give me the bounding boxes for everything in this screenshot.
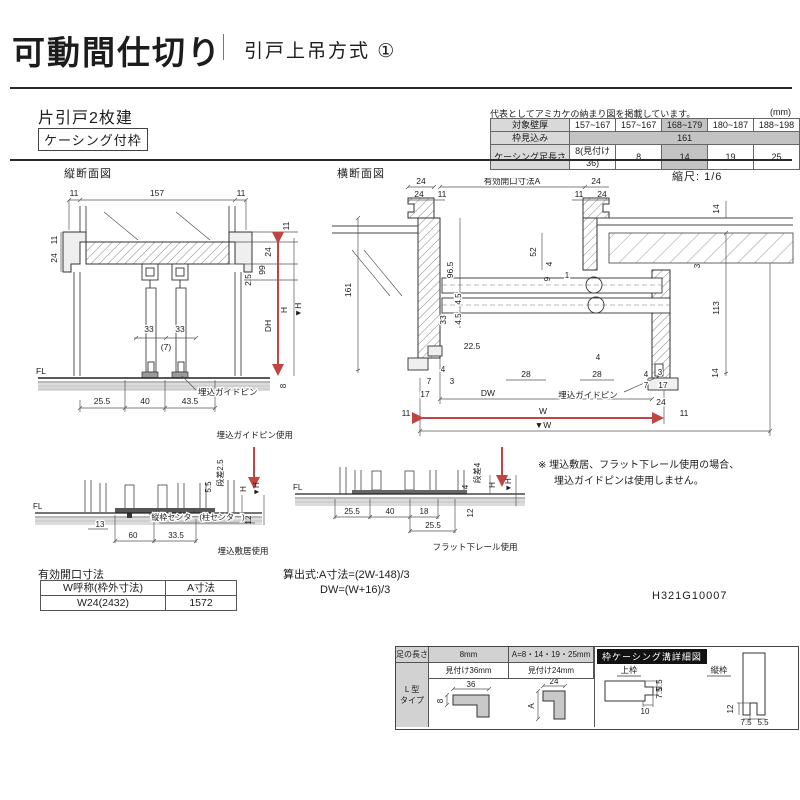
- dim-label: ▼H: [252, 482, 261, 496]
- dim-label: 18: [420, 507, 429, 516]
- dim-label: 24: [263, 247, 273, 257]
- spec-cell: 19: [708, 145, 754, 170]
- leg-row-label: L 型 タイプ: [396, 663, 429, 727]
- dim-label: 12: [466, 508, 475, 517]
- left-casing-foot: [408, 358, 428, 370]
- dimension-lines: [61, 198, 298, 412]
- spec-cell: 8(見付け36): [570, 145, 616, 170]
- dim-label: 4.5: [454, 293, 463, 305]
- lintel-section: [86, 242, 229, 264]
- dim-label: 43.5: [182, 396, 199, 406]
- dim-label: 17: [420, 389, 430, 399]
- dim-label: 157: [150, 188, 164, 198]
- dim-label: 2.5: [243, 274, 253, 286]
- dim-label: 113: [711, 301, 721, 315]
- dim-label: 36: [467, 680, 476, 689]
- groove-detail-drawing: 上枠 縦枠 5.5 7.5 10: [595, 647, 798, 726]
- dim-label: 28: [592, 369, 602, 379]
- casing-leg-table: 足の長さ 8mm A=8・14・19・25mm L 型 タイプ 見付け36mm …: [395, 646, 799, 730]
- door-plan: [442, 277, 670, 376]
- vertical-section-title: 縦断面図: [64, 165, 112, 181]
- dim-label: 4: [644, 370, 649, 379]
- dim-label: H: [279, 307, 289, 313]
- dim-label: 12: [244, 515, 253, 524]
- dim-label: 33: [175, 324, 185, 334]
- product-frame-label: ケーシング付枠: [38, 128, 148, 151]
- dim-label: 4.5: [454, 313, 463, 325]
- dim-label: 11: [237, 188, 246, 198]
- dim-label: 11: [438, 189, 447, 199]
- detail-title: 埋込ガイドピン使用: [216, 430, 293, 440]
- opening-col2-header: A寸法: [166, 581, 237, 596]
- dim-label: 24: [416, 178, 426, 186]
- opening-w-value: W24(2432): [41, 596, 166, 611]
- opening-table: W呼称(枠外寸法) A寸法 W24(2432) 1572: [40, 580, 237, 611]
- dim-label: 11: [575, 189, 584, 199]
- formula-line2: DW=(W+16)/3: [283, 583, 410, 598]
- leg-row-label-line2: タイプ: [400, 695, 424, 706]
- usage-note: ※ 埋込敷居、フラット下レール使用の場合、 埋込ガイドピンは使用しません。: [538, 458, 793, 490]
- section-rule: [10, 159, 792, 161]
- dim-label: 12: [726, 704, 735, 713]
- dim-label: 4: [545, 261, 554, 266]
- wall-truss-band: [609, 233, 793, 263]
- dim-label: W: [539, 406, 547, 416]
- dim-label: 7: [427, 377, 432, 386]
- dim-label: DH: [263, 320, 273, 332]
- page-subtitle: 引戸上吊方式 ①: [244, 36, 396, 63]
- dim-label: 7.5: [740, 718, 752, 726]
- dim-label: 4: [441, 365, 446, 374]
- leg-sub-3: 見付け24mm: [509, 663, 594, 679]
- guide-pin-label: 埋込ガイドピン: [558, 390, 618, 400]
- left-casing: [63, 232, 86, 272]
- spec-label: 枠見込み: [491, 132, 570, 145]
- dim-label: 11: [281, 221, 291, 230]
- dim-label: 3: [693, 263, 702, 268]
- leg-header-2: 8mm: [429, 647, 509, 663]
- dim-label: 52: [528, 247, 538, 257]
- dim-label: 40: [140, 396, 150, 406]
- formula-line1: 算出式:A寸法=(2W-148)/3: [283, 568, 410, 583]
- dim-label: 24: [656, 397, 666, 407]
- spec-cell: 8: [616, 145, 662, 170]
- dim-label: 24: [414, 189, 424, 199]
- dim-label: 28: [521, 369, 531, 379]
- spec-row-wall: 対象壁厚 157~167 157~167 168~179 180~187 188…: [491, 119, 800, 132]
- dim-label: 7: [644, 381, 649, 390]
- opening-value-row: W24(2432) 1572: [41, 596, 237, 611]
- dim-label: 40: [386, 507, 395, 516]
- title-divider: [223, 34, 224, 60]
- groove-detail-cell: 枠ケーシング溝詳細図 上枠 縦枠 5.5 7.5 10: [594, 647, 799, 727]
- dim-label: 9: [543, 276, 552, 281]
- dim-label: 161: [343, 283, 353, 297]
- spec-cell: 180~187: [708, 119, 754, 132]
- flat-rail-detail-drawing: FL 段差4 4 H ▼H 12 25.5 40 18 25.5 フラット下レー…: [290, 425, 550, 560]
- dim-label: 8: [436, 698, 445, 703]
- vertical-section-drawing: 11 157 11 11 24 11 24 99 2.5 33 33 (7) F…: [30, 180, 315, 455]
- dim-label: 25.5: [344, 507, 360, 516]
- dim-label: 7.5: [655, 687, 664, 699]
- dim-label: 22.5: [464, 341, 481, 351]
- dim-label: 4: [596, 353, 601, 362]
- dim-label: 4: [461, 484, 470, 489]
- dim-label: (7): [161, 342, 172, 352]
- frame-lines: [340, 467, 464, 494]
- floor-level-label: FL: [33, 502, 43, 511]
- dim-label: 24: [597, 189, 607, 199]
- dim-label: 段差2.5: [215, 459, 225, 487]
- guide-pin-label: 埋込ガイドピン: [198, 387, 258, 397]
- dim-label: 11: [49, 235, 59, 244]
- leg-profile-36-drawing: 36 8: [429, 679, 509, 727]
- door-panels: [74, 272, 241, 376]
- left-guide-block: [428, 346, 442, 356]
- dim-label: 14: [711, 204, 721, 214]
- dim-label: 段差4: [472, 462, 482, 483]
- leg-header-1: 足の長さ: [396, 647, 429, 663]
- opening-header-row: W呼称(枠外寸法) A寸法: [41, 581, 237, 596]
- dim-label: A: [527, 703, 536, 709]
- left-casing-section: [408, 198, 434, 218]
- dim-label: H: [488, 482, 497, 488]
- dim-label: 25.5: [425, 521, 441, 530]
- right-casing: [229, 232, 252, 272]
- dim-label: 10: [641, 707, 650, 716]
- spec-cell: 161: [570, 132, 800, 145]
- side-frame-label: 縦枠: [710, 665, 728, 675]
- spec-cell: 188~198: [754, 119, 800, 132]
- spec-cell: 157~167: [616, 119, 662, 132]
- spec-table: 対象壁厚 157~167 157~167 168~179 180~187 188…: [490, 118, 800, 170]
- detail-caption: 埋込敷居使用: [217, 546, 268, 556]
- dim-label: 1: [565, 271, 570, 280]
- detail-caption: フラット下レール使用: [432, 542, 517, 552]
- dim-label: 8: [279, 383, 288, 388]
- dim-label: 24: [49, 253, 59, 263]
- dim-label: 5.5: [757, 718, 769, 726]
- dim-label: 99: [257, 265, 267, 275]
- note-line2: 埋込ガイドピンは使用しません。: [538, 474, 793, 490]
- dim-label: 17: [658, 380, 668, 390]
- dim-label: 5.5: [204, 481, 213, 493]
- center-label: 縦枠センター(柱センター): [151, 512, 245, 522]
- dim-label: ▼H: [293, 303, 303, 318]
- left-jamb-section: [418, 218, 440, 358]
- dim-label: 25.5: [94, 396, 111, 406]
- spec-row-frame: 枠見込み 161: [491, 132, 800, 145]
- dim-label: ▼H: [504, 478, 513, 492]
- spec-cell: 25: [754, 145, 800, 170]
- horizontal-section-drawing: 有効開口寸法A 24 24 11 24 11 24 14 161 96.5 4.…: [330, 178, 795, 458]
- spec-cell: 157~167: [570, 119, 616, 132]
- dim-label: DW: [481, 388, 495, 398]
- page: 可動間仕切り 引戸上吊方式 ① 片引戸2枚建 ケーシング付枠 代表としてアミカケ…: [0, 0, 800, 800]
- opening-dim-label: 有効開口寸法A: [484, 178, 541, 186]
- sill-detail-drawing: 埋込ガイドピン使用 FL 段差2.5 5.5 H ▼H 12 13 縦枠センター…: [30, 425, 295, 560]
- right-casing-section: [583, 198, 609, 218]
- dim-label: 33.5: [168, 531, 184, 540]
- product-type-label: 片引戸2枚建: [38, 104, 133, 128]
- formula: 算出式:A寸法=(2W-148)/3 DW=(W+16)/3: [283, 568, 410, 598]
- spec-unit: (mm): [770, 107, 791, 117]
- upper-frame-label: 上枠: [620, 665, 638, 675]
- header-rule: [10, 87, 792, 89]
- spec-row-casing: ケーシング足長さ 8(見付け36) 8 14 19 25: [491, 145, 800, 170]
- spec-cell-highlight: 14: [662, 145, 708, 170]
- doc-number: H321G10007: [652, 590, 727, 602]
- dim-label: 33: [144, 324, 154, 334]
- dim-label: 14: [710, 368, 720, 378]
- spec-label: 対象壁厚: [491, 119, 570, 132]
- leg-row-label-line1: L 型: [405, 684, 419, 695]
- leg-profile-24-drawing: 24 A: [509, 679, 594, 727]
- opening-a-value: 1572: [166, 596, 237, 611]
- dim-label: 24: [591, 178, 601, 186]
- dim-label: 24: [550, 679, 559, 686]
- dim-label: 11: [680, 408, 689, 418]
- opening-col1-header: W呼称(枠外寸法): [41, 581, 166, 596]
- hanger-rollers: [142, 264, 188, 288]
- note-line1: ※ 埋込敷居、フラット下レール使用の場合、: [538, 458, 793, 474]
- leg-header-3: A=8・14・19・25mm: [509, 647, 594, 663]
- dim-label: 11: [402, 408, 411, 418]
- dim-label: H: [239, 486, 248, 492]
- dim-label: 13: [96, 520, 105, 529]
- spec-label: ケーシング足長さ: [491, 145, 570, 170]
- floor-level-label: FL: [293, 483, 303, 492]
- dim-label: 3: [658, 368, 663, 377]
- wall-lines: [80, 206, 235, 242]
- dim-label: 3: [450, 377, 455, 386]
- right-wall: [597, 218, 793, 225]
- spec-cell-highlight: 168~179: [662, 119, 708, 132]
- leg-sub-2: 見付け36mm: [429, 663, 509, 679]
- dim-label: 60: [129, 531, 138, 540]
- dim-label: 11: [70, 188, 79, 198]
- right-jamb-section: [583, 218, 597, 270]
- page-title: 可動間仕切り: [12, 26, 222, 74]
- floor-level-label: FL: [36, 366, 46, 376]
- dim-label: 33: [438, 315, 448, 325]
- dim-label: 96.5: [445, 261, 455, 278]
